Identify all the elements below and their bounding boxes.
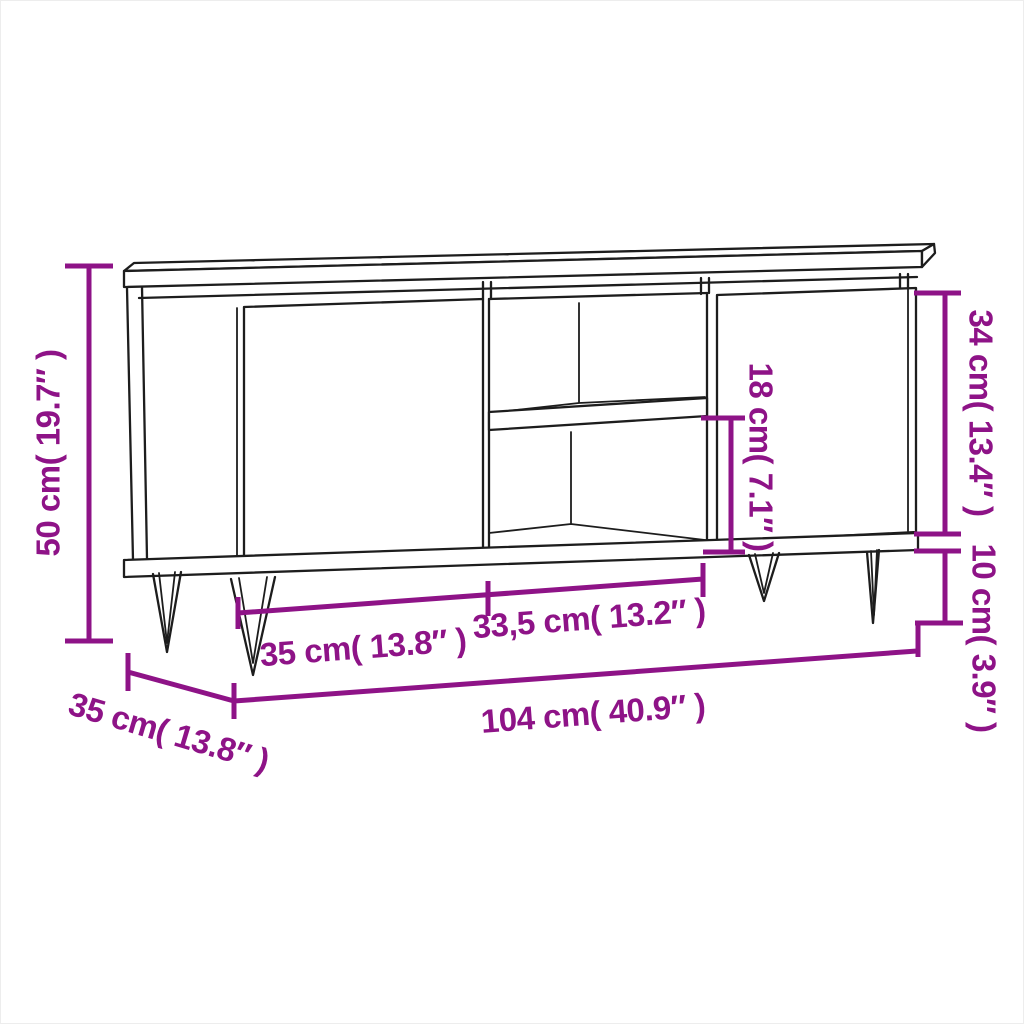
dim-compartment-widths: 35 cm( 13.8″ ) 33,5 cm( 13.2″ ) bbox=[238, 563, 707, 673]
label-total-width: 104 cm( 40.9″ ) bbox=[480, 686, 707, 740]
dim-door-height: 34 cm( 13.4″ ) bbox=[914, 293, 1000, 534]
dim-leg-height: 10 cm( 3.9″ ) bbox=[914, 543, 1003, 732]
diagram-canvas: 50 cm( 19.7″ ) 34 cm( 13.4″ ) 10 cm( 3.9… bbox=[0, 0, 1024, 1024]
label-height: 50 cm( 19.7″ ) bbox=[30, 350, 67, 557]
left-door bbox=[237, 299, 483, 559]
interior-upper-corner bbox=[489, 303, 705, 413]
label-left-compartment-width: 35 cm( 13.8″ ) bbox=[258, 621, 467, 673]
dim-height: 50 cm( 19.7″ ) bbox=[30, 266, 114, 641]
leg-front-right bbox=[867, 550, 879, 623]
label-door-height: 34 cm( 13.4″ ) bbox=[963, 310, 1000, 517]
interior-lower-corner bbox=[489, 432, 705, 540]
leg-back-right bbox=[749, 553, 779, 601]
label-shelf-opening-height: 18 cm( 7.1″ ) bbox=[743, 362, 780, 551]
leg-back-left bbox=[153, 572, 181, 652]
dim-depth: 35 cm( 13.8″ ) bbox=[65, 653, 274, 779]
label-middle-compartment-width: 33,5 cm( 13.2″ ) bbox=[471, 591, 707, 645]
label-leg-height: 10 cm( 3.9″ ) bbox=[966, 543, 1003, 732]
tv-cabinet-dimension-diagram: 50 cm( 19.7″ ) 34 cm( 13.4″ ) 10 cm( 3.9… bbox=[1, 1, 1024, 1024]
left-side-panel bbox=[127, 287, 147, 560]
